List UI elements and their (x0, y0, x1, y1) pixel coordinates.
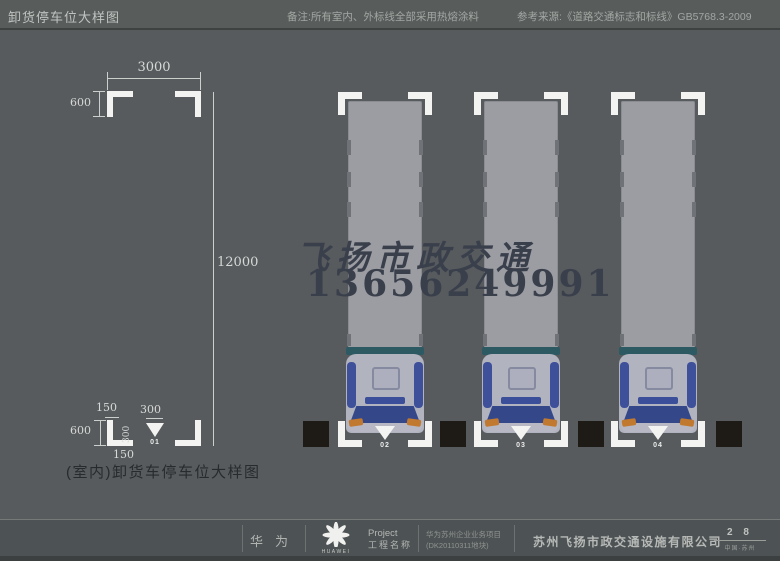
header-bar: 卸货停车位大样图 备注:所有室内、外标线全部采用热熔涂料 参考来源:《道路交通标… (0, 0, 780, 30)
trailer-wheel (555, 172, 559, 187)
corner-mark (561, 92, 568, 115)
trailer-wheel (483, 334, 487, 346)
cab-side-window (347, 362, 356, 408)
trailer-wheel (555, 334, 559, 346)
bay-corner-mark-top-left-arm (107, 91, 113, 117)
dimension-tick (93, 91, 105, 92)
dimension-line-3000 (108, 78, 201, 79)
trailer-wheel (419, 334, 423, 346)
cab-roof-strip (638, 397, 678, 404)
trailer-wheel (347, 140, 351, 155)
project-label: Project 工程名称 (368, 528, 412, 551)
project-name-line2: (DK20110311地块) (426, 540, 501, 551)
project-name: 华为苏州企业业务项目 (DK20110311地块) (426, 529, 501, 552)
dimension-tick (105, 417, 119, 418)
dimension-line-12000 (213, 92, 214, 446)
trailer-wheel (483, 140, 487, 155)
trailer-wheel (419, 202, 423, 217)
header-note: 备注:所有室内、外标线全部采用热熔涂料 (287, 9, 479, 24)
cab-side-window (550, 362, 559, 408)
dimension-label-600-bottom: 600 (70, 424, 91, 437)
page-number: 2 8 (714, 527, 766, 541)
footer-divider (418, 525, 419, 552)
page-title: 卸货停车位大样图 (8, 7, 120, 26)
project-label-en: Project (368, 528, 412, 540)
drawing-sheet: 卸货停车位大样图 备注:所有室内、外标线全部采用热熔涂料 参考来源:《道路交通标… (0, 0, 780, 561)
page-number-block: 2 8 中国·苏州 (714, 527, 766, 552)
cab-roof-strip (501, 397, 541, 404)
pillar (303, 421, 329, 447)
trailer-wheel (483, 202, 487, 217)
footer-divider (305, 525, 306, 552)
trailer-wheel (620, 140, 624, 155)
truck-trailer (484, 101, 558, 351)
trailer-wheel (483, 172, 487, 187)
truck-trailer (621, 101, 695, 351)
huawei-flower-icon (322, 522, 350, 547)
bay-arrow-symbol (375, 426, 395, 440)
huawei-brand-text: 华为 (250, 531, 300, 550)
trailer-wheel (692, 334, 696, 346)
truck-cab (482, 354, 560, 433)
cab-roof-strip (365, 397, 405, 404)
dimension-label-300-height: 300 (122, 426, 132, 443)
pillar (440, 421, 466, 447)
dimension-tick (146, 418, 163, 419)
trailer-wheel (620, 334, 624, 346)
header-reference: 参考来源:《道路交通标志和标线》GB5768.3-2009 (517, 9, 752, 24)
cab-sunroof (645, 367, 673, 390)
truck-cab (346, 354, 424, 433)
bay-arrow-symbol (511, 426, 531, 440)
dimension-label-150-bottom: 150 (113, 448, 134, 461)
trailer-wheel (620, 172, 624, 187)
bay-number-01: 01 (144, 439, 166, 446)
trailer-wheel (347, 172, 351, 187)
trailer-wheel (347, 202, 351, 217)
trailer-wheel (347, 334, 351, 346)
trailer-wheel (692, 202, 696, 217)
corner-mark (338, 92, 345, 115)
sheet-bottom-edge (0, 556, 780, 561)
pillar (578, 421, 604, 447)
trailer-wheel (692, 172, 696, 187)
cab-side-window (414, 362, 423, 408)
dimension-label-300-width: 300 (140, 403, 161, 416)
footer-divider (514, 525, 515, 552)
cab-sunroof (508, 367, 536, 390)
truck-trailer (348, 101, 422, 351)
bay-number: 04 (611, 442, 705, 449)
footer-divider (242, 525, 243, 552)
footer-bar: 华为 HUAWEI Project 工程名称 华为苏州企 (0, 519, 780, 561)
bay-arrow-symbol (648, 426, 668, 440)
huawei-logo-text: HUAWEI (313, 549, 359, 555)
dimension-tick (94, 445, 106, 446)
cab-side-window (483, 362, 492, 408)
cab-sunroof (372, 367, 400, 390)
dimension-label-3000: 3000 (126, 60, 182, 75)
huawei-logo: HUAWEI (313, 522, 359, 555)
truck-cab (619, 354, 697, 433)
dimension-line-600-bottom (100, 420, 101, 446)
pillar (716, 421, 742, 447)
corner-mark (611, 92, 618, 115)
trailer-wheel (692, 140, 696, 155)
bay-arrow-symbol-01 (146, 423, 164, 437)
bay-number: 03 (474, 442, 568, 449)
corner-mark (425, 92, 432, 115)
dimension-tick (94, 420, 106, 421)
project-label-zh: 工程名称 (368, 540, 412, 551)
corner-mark (698, 92, 705, 115)
company-name: 苏州飞扬市政交通设施有限公司 (533, 533, 722, 550)
dimension-tick (107, 72, 108, 90)
bay-corner-mark-bottom-right (175, 440, 201, 446)
trailer-wheel (620, 202, 624, 217)
bay-number: 02 (338, 442, 432, 449)
dimension-tick (200, 72, 201, 90)
cab-side-window (620, 362, 629, 408)
dimension-label-150-top: 150 (96, 401, 117, 414)
dimension-line-600-top (99, 91, 100, 117)
dimension-tick (93, 116, 105, 117)
watermark-phone: 13656249991 (306, 263, 615, 305)
trailer-wheel (419, 172, 423, 187)
trailer-wheel (555, 202, 559, 217)
parking-space-04: 04 (611, 92, 705, 452)
drawing-caption: (室内)卸货车停车位大样图 (66, 461, 261, 482)
trailer-wheel (555, 140, 559, 155)
project-name-line1: 华为苏州企业业务项目 (426, 529, 501, 540)
dimension-label-600-top: 600 (70, 96, 91, 109)
bay-corner-mark-top-right-arm (195, 91, 201, 117)
corner-mark (474, 92, 481, 115)
dimension-label-12000: 12000 (217, 255, 258, 270)
page-location: 中国·苏州 (714, 543, 766, 552)
trailer-wheel (419, 140, 423, 155)
cab-side-window (687, 362, 696, 408)
